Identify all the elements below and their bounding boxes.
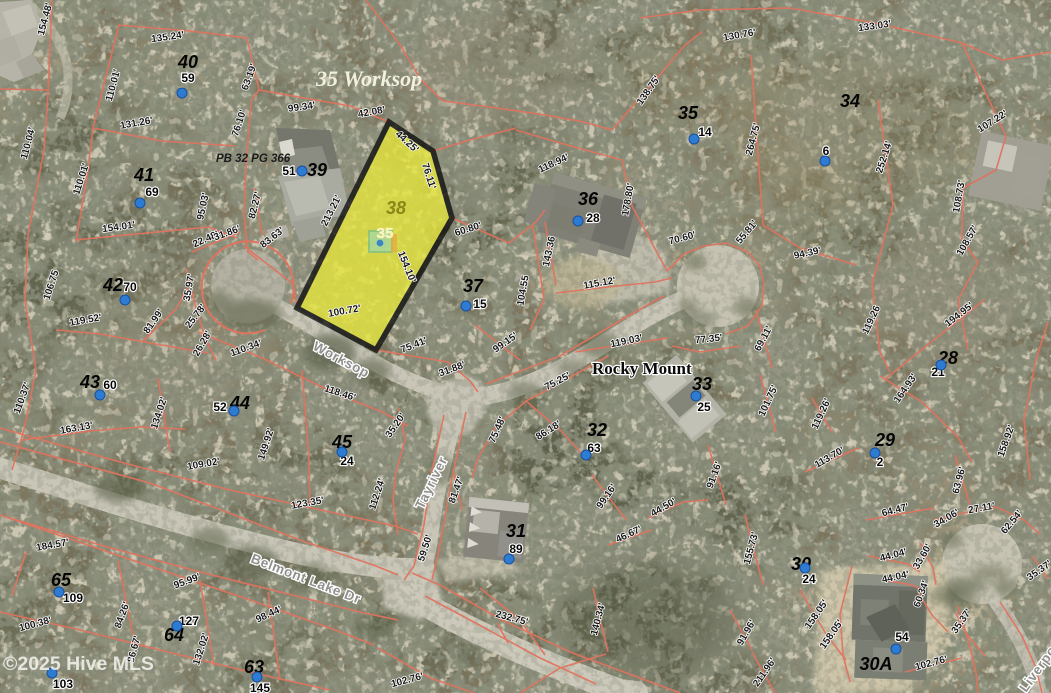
svg-text:30A: 30A	[859, 654, 892, 674]
svg-text:24: 24	[802, 572, 816, 586]
svg-text:60: 60	[103, 378, 117, 392]
svg-text:109: 109	[63, 591, 83, 605]
svg-text:39: 39	[307, 160, 327, 180]
svg-text:28: 28	[586, 211, 600, 225]
svg-text:54: 54	[895, 630, 909, 644]
svg-text:38: 38	[386, 198, 406, 218]
svg-text:103: 103	[53, 677, 73, 691]
svg-text:59: 59	[181, 71, 195, 85]
svg-text:43: 43	[79, 372, 100, 392]
svg-text:©2025 Hive MLS: ©2025 Hive MLS	[3, 653, 154, 675]
svg-text:36: 36	[578, 189, 599, 209]
svg-text:41: 41	[133, 165, 154, 185]
svg-text:Rocky Mount: Rocky Mount	[592, 359, 692, 378]
svg-text:145: 145	[250, 681, 270, 693]
svg-text:37: 37	[463, 276, 484, 296]
svg-text:89: 89	[509, 542, 523, 556]
svg-text:35 Worksop: 35 Worksop	[315, 66, 422, 91]
svg-text:40: 40	[177, 52, 198, 72]
svg-text:31: 31	[506, 521, 526, 541]
svg-text:14: 14	[698, 125, 712, 139]
svg-text:65: 65	[51, 570, 72, 590]
svg-text:69: 69	[145, 185, 159, 199]
svg-text:PB 32 PG 366: PB 32 PG 366	[216, 153, 291, 165]
svg-text:52: 52	[213, 400, 227, 414]
svg-text:51: 51	[282, 164, 296, 178]
svg-text:32: 32	[587, 420, 607, 440]
svg-text:34: 34	[840, 91, 860, 111]
svg-text:29: 29	[874, 430, 895, 450]
svg-text:42: 42	[102, 275, 123, 295]
svg-text:35: 35	[377, 225, 394, 242]
svg-text:70: 70	[123, 280, 137, 294]
svg-text:35: 35	[678, 103, 699, 123]
svg-text:15: 15	[473, 297, 487, 311]
svg-text:25: 25	[697, 400, 711, 414]
